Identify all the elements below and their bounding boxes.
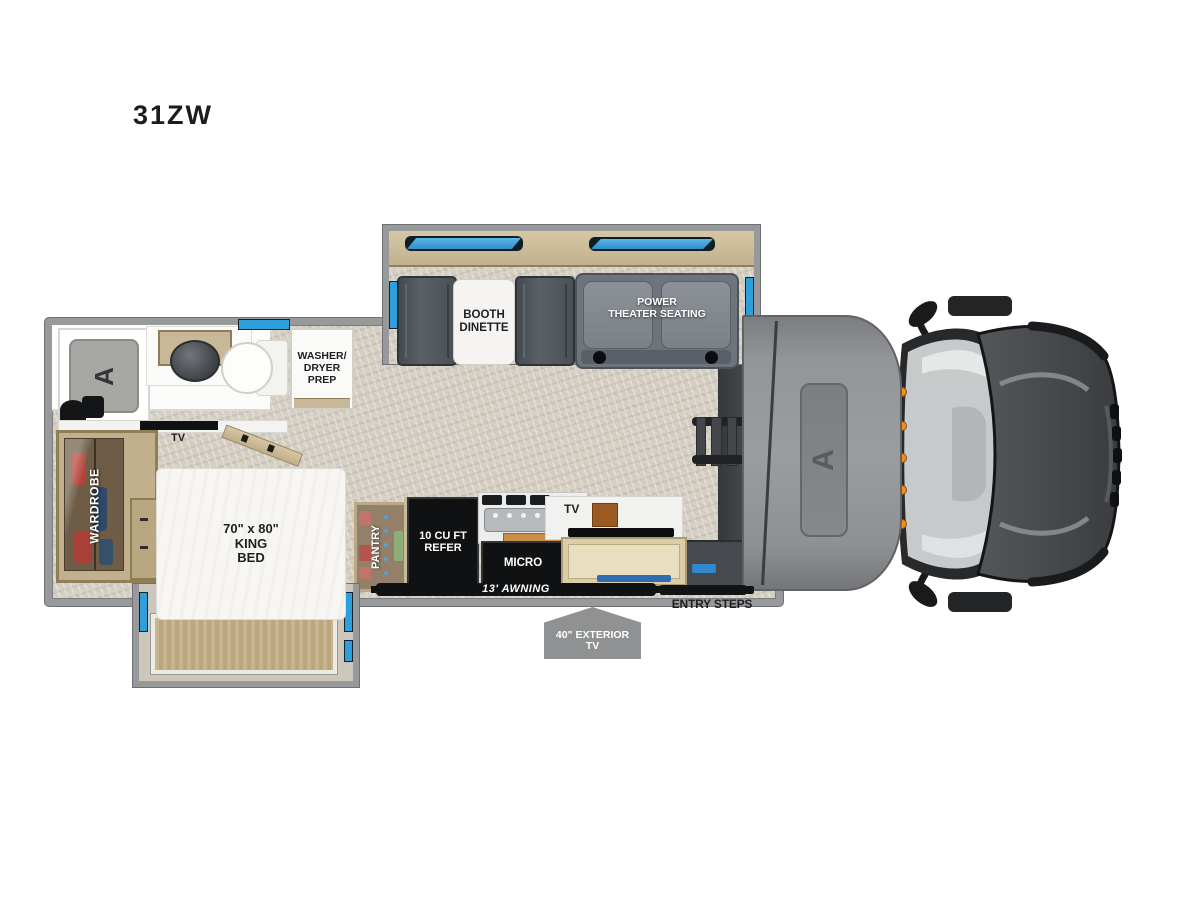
window-icon: [344, 640, 353, 662]
theater-seating-label: POWER THEATER SEATING: [577, 297, 737, 321]
microwave: MICRO: [481, 541, 565, 586]
microwave-label: MICRO: [504, 557, 542, 570]
model-title: 31ZW: [133, 100, 213, 130]
exterior-tv-label: 40" EXTERIOR TV: [556, 630, 629, 654]
refrigerator: 10 CU FT REFER: [407, 497, 479, 587]
bedroom-tv: [140, 421, 218, 430]
king-bed-label: 70" x 80" KING BED: [223, 522, 279, 566]
window-icon: [238, 319, 290, 330]
tv-console: [592, 503, 618, 527]
slideout-dinette-theater: BOOTH DINETTE POWER THEATER SEATING: [383, 225, 760, 364]
truck-cab-front: [882, 288, 1160, 620]
kitchen-tv: [568, 528, 674, 537]
refrigerator-label: 10 CU FT REFER: [419, 530, 467, 555]
washer-dryer-prep: WASHER/ DRYER PREP: [290, 328, 354, 410]
washer-dryer-label: WASHER/ DRYER PREP: [297, 351, 346, 386]
cooktop-burners: [484, 508, 548, 532]
bed-footboard: [151, 614, 337, 674]
entry-steps-label: ENTRY STEPS: [664, 598, 760, 611]
overhead-cabinet: [389, 231, 754, 267]
entry-steps-bar: [660, 585, 746, 595]
exterior-tv-badge: 40" EXTERIOR TV: [544, 607, 641, 659]
awning-bar: 13' AWNING: [376, 583, 656, 596]
tv-cabinet: [561, 537, 687, 586]
awning-label: 13' AWNING: [482, 583, 550, 595]
towel-hooks-icon: [60, 396, 108, 420]
booth-dinette-label: BOOTH DINETTE: [459, 309, 508, 335]
kitchen-tv-label: TV: [564, 503, 579, 516]
bedroom-tv-label: TV: [160, 432, 196, 444]
dinette-bench: [397, 276, 457, 366]
wardrobe-label: WARDROBE: [88, 468, 101, 543]
bathroom-sink: [170, 340, 220, 382]
cupholder-icon: [593, 351, 606, 364]
king-bed: 70" x 80" KING BED: [156, 468, 346, 620]
floor-mat: [597, 575, 671, 582]
toilet: [221, 342, 273, 394]
brand-logo-icon: A: [807, 449, 841, 471]
theater-seating: POWER THEATER SEATING: [575, 273, 739, 369]
hood: [978, 327, 1119, 582]
pantry-label: PANTRY: [370, 525, 382, 569]
window-icon: [405, 236, 523, 251]
overcab-bunk-cap: A: [742, 315, 902, 591]
nightstand: [130, 498, 158, 580]
dinette-table: BOOTH DINETTE: [453, 279, 515, 365]
kitchen-tv-counter: TV: [545, 496, 683, 540]
window-icon: [389, 281, 398, 329]
cap-window: A: [800, 383, 848, 537]
entry-mat: [692, 564, 716, 573]
floorplan-canvas: 31ZW BOOTH DINETTE POWER THEATER SEATING…: [0, 0, 1200, 900]
window-icon: [589, 237, 715, 251]
brand-logo-icon: A: [89, 367, 120, 386]
window-icon: [139, 592, 148, 632]
cupholder-icon: [705, 351, 718, 364]
pantry: PANTRY: [354, 502, 410, 592]
dinette-bench: [515, 276, 575, 366]
